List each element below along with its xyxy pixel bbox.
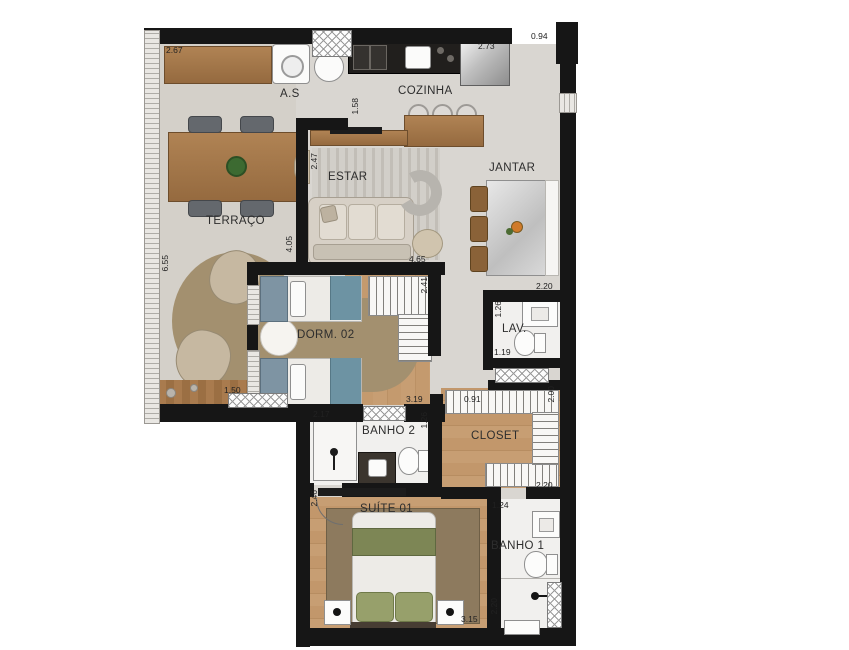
bed-pillow-green <box>395 592 433 622</box>
cooktop-knob-icon <box>447 55 454 62</box>
bed-pillow-green <box>356 592 394 622</box>
dim-suite-bottom: 3.15 <box>461 614 478 624</box>
suite-tv-icon <box>318 488 406 496</box>
floor-plan-page: { "rooms": { "terraco": "TERRAÇO", "as":… <box>0 0 849 650</box>
room-label-jantar: JANTAR <box>489 162 535 174</box>
banho2-basin-icon <box>368 459 387 477</box>
washer <box>272 44 310 84</box>
dorm-door-sill <box>363 406 406 421</box>
terraco-door-sill <box>228 393 288 408</box>
lav-basin-icon <box>531 307 549 321</box>
lav-toilet-tank <box>534 333 546 353</box>
dim-terraco-door: 1.50 <box>224 385 241 395</box>
dining-chair <box>470 216 488 242</box>
dining-bench <box>545 180 559 276</box>
shower-divider <box>501 578 561 579</box>
dim-estar-bottom: 4.65 <box>409 254 426 264</box>
bed-pillow <box>290 364 306 400</box>
room-label-as: A.S <box>280 88 300 100</box>
sofa <box>308 197 414 265</box>
sliding-glass-track <box>144 30 160 424</box>
bed-pillow <box>290 281 306 317</box>
nightstand <box>437 600 464 625</box>
pebble <box>166 388 176 398</box>
dim-hall: 0.91 <box>464 394 481 404</box>
dining-chair <box>470 186 488 212</box>
bed-blanket-band <box>352 528 436 556</box>
dim-banho1-top: 1.24 <box>492 500 509 510</box>
banho2-shower <box>313 421 357 481</box>
dim-jantar-bottom: 2.20 <box>536 281 553 291</box>
dim-entry: 0.94 <box>531 31 548 41</box>
hall-door-sill <box>495 368 549 383</box>
lamp-icon <box>333 608 341 616</box>
room-label-suite01: SUÍTE 01 <box>360 503 413 515</box>
sofa-pillow <box>320 205 339 224</box>
lav-sink <box>522 301 558 327</box>
dim-lav-bottom: 1.19 <box>494 347 511 357</box>
room-label-banho2: BANHO 2 <box>362 425 415 437</box>
wall <box>441 487 501 499</box>
banho1-door-sill <box>504 620 540 635</box>
dim-closet-bottom: 2.20 <box>536 480 553 490</box>
leaf-icon <box>506 228 513 235</box>
banho2-vanity <box>358 452 396 484</box>
dim-banho1-side: 2.20 <box>489 598 499 615</box>
dim-terraco-top: 2.67 <box>166 45 183 55</box>
plant-icon <box>226 156 247 177</box>
bed-blanket <box>330 358 361 404</box>
wall <box>428 268 441 356</box>
sofa-seat <box>348 204 376 240</box>
wall <box>560 40 576 630</box>
oven-icon <box>370 45 387 70</box>
dim-banho2-top: 2.17 <box>313 409 330 419</box>
service-window <box>559 93 577 113</box>
dim-dorm-side: 2.41 <box>419 277 429 294</box>
dorm-window <box>247 285 260 325</box>
banho1-toilet-tank <box>546 554 558 575</box>
bed-headboard <box>260 276 288 322</box>
kitchen-sink <box>405 46 431 69</box>
kitchen-counter <box>348 40 462 74</box>
banho1-toilet <box>524 551 548 578</box>
dim-terraco-estar: 4.05 <box>284 236 294 253</box>
banho1-basin-icon <box>539 518 554 532</box>
washer-drum-icon <box>281 55 304 78</box>
dorm-window <box>247 350 260 397</box>
dorm-side-table <box>260 318 298 356</box>
room-label-estar: ESTAR <box>328 171 368 183</box>
oven-icon <box>353 45 370 70</box>
dorm-wardrobe <box>398 314 432 362</box>
room-label-lav: LAV. <box>502 323 527 335</box>
bed-blanket <box>330 276 361 320</box>
banho1-sink <box>532 511 560 538</box>
dim-kitchen-top: 2.73 <box>478 41 495 51</box>
room-label-closet: CLOSET <box>471 430 519 442</box>
room-label-dorm02: DORM. 02 <box>297 329 355 341</box>
as-cabinet <box>312 30 352 57</box>
dim-banho2-side: 1.26 <box>419 412 429 429</box>
dim-closet-side: 2.00 <box>546 386 556 403</box>
room-label-banho1: BANHO 1 <box>491 540 544 552</box>
closet-wardrobe-top <box>445 390 559 414</box>
dim-estar-wall: 1.58 <box>350 98 360 115</box>
room-label-cozinha: COZINHA <box>398 85 453 97</box>
dim-terraco-side: 6.55 <box>160 255 170 272</box>
cooktop-knob-icon <box>437 47 444 54</box>
dining-table <box>486 180 546 276</box>
dim-dorm-bottom: 3.19 <box>406 394 423 404</box>
room-label-terraco: TERRAÇO <box>206 215 265 227</box>
dim-suite-side: 2.46 <box>309 490 319 507</box>
wall <box>483 358 576 368</box>
floor-plan: TERRAÇO A.S COZINHA ESTAR JANTAR DORM. 0… <box>0 0 849 650</box>
bar-counter <box>404 115 484 147</box>
nightstand <box>324 600 351 625</box>
dining-chair <box>470 246 488 272</box>
wall <box>296 118 308 268</box>
wall <box>296 404 310 647</box>
closet-wardrobe-right <box>532 412 559 465</box>
sofa-backrest <box>313 244 411 260</box>
sofa-seat <box>377 204 405 240</box>
terraco-chair <box>240 116 274 133</box>
dim-estar-side: 2.47 <box>309 153 319 170</box>
banho2-toilet <box>398 447 420 475</box>
shower-arm-icon <box>333 454 335 470</box>
pebble <box>190 384 198 392</box>
lamp-icon <box>446 608 454 616</box>
wall <box>296 118 348 130</box>
shower-glass-door <box>547 582 562 628</box>
dim-lav-side: 1.26 <box>493 301 503 318</box>
terraco-chair <box>188 116 222 133</box>
